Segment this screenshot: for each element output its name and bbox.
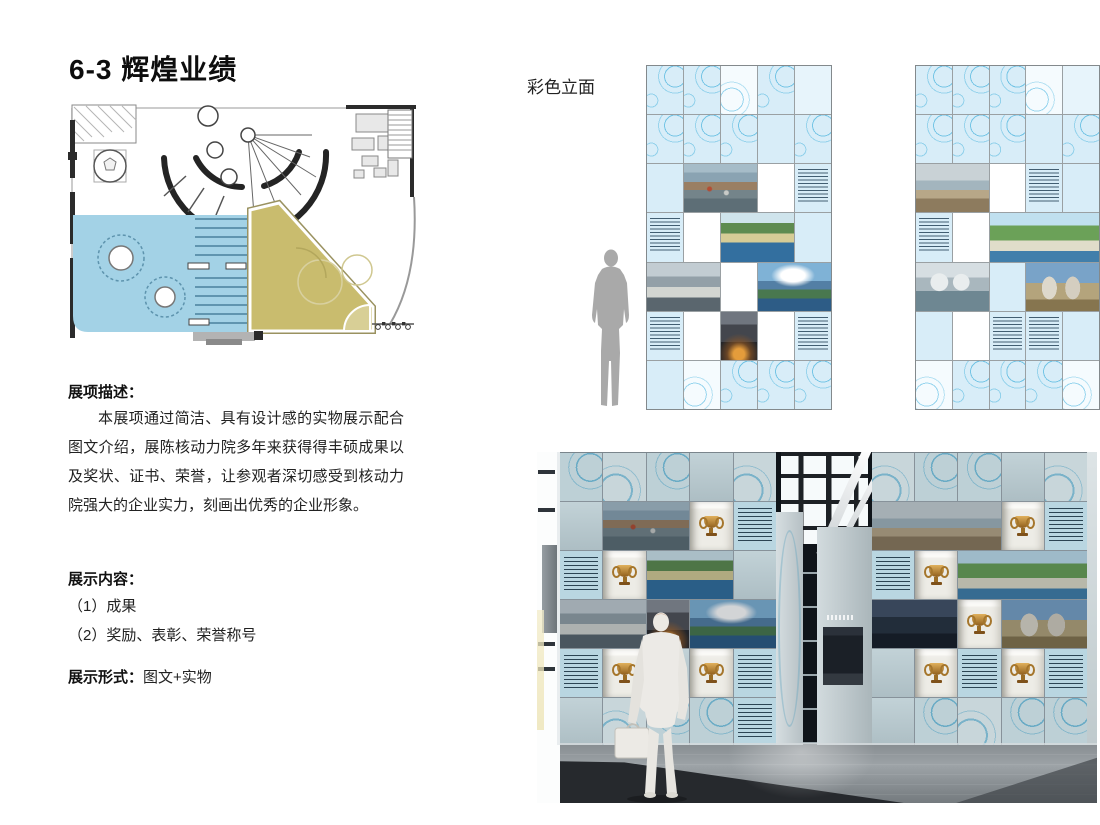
text-tile — [734, 502, 776, 550]
blueprint-tile — [758, 66, 794, 114]
text-tile — [958, 649, 1000, 697]
photo-tile-desert-towers — [1002, 600, 1087, 648]
text-tile — [795, 312, 831, 360]
floor-highlight — [721, 745, 882, 803]
description-heading: 展项描述： — [68, 381, 143, 402]
trophy-icon — [927, 565, 945, 585]
photo-tile-desert-towers — [1026, 263, 1099, 311]
blueprint-tile — [990, 361, 1026, 409]
blueprint-tile — [1063, 361, 1099, 409]
photo-tile-cooling-tower — [758, 263, 831, 311]
white-tile — [684, 213, 720, 261]
text-tile — [916, 213, 952, 261]
blueprint-tile — [795, 115, 831, 163]
text-tile — [1026, 164, 1062, 212]
text-tile — [1026, 312, 1062, 360]
white-tile — [684, 312, 720, 360]
text-tile — [734, 649, 776, 697]
white-tile — [758, 164, 794, 212]
wall-side-panel — [776, 512, 803, 745]
text-tile — [872, 551, 914, 599]
building-silhouette-photo — [823, 627, 863, 685]
content-item-1: （1）成果 — [68, 595, 136, 616]
photo-tile-dusk-tower — [721, 312, 757, 360]
floor-shadow-band — [925, 745, 1097, 803]
blue-tile — [916, 312, 952, 360]
window-mullion — [538, 508, 555, 512]
text-tile — [795, 164, 831, 212]
gray-tile — [560, 502, 602, 550]
blueprint-tile — [647, 453, 689, 501]
blueprint-tile — [1002, 698, 1044, 746]
content-heading: 展示内容： — [68, 568, 143, 589]
page-title: 6-3 辉煌业绩 — [69, 48, 237, 88]
exhibition-3d-render — [537, 452, 1097, 803]
trophy-icon — [616, 565, 634, 585]
right-edge-panel — [1087, 452, 1097, 745]
format-line: 展示形式：图文+实物 — [68, 666, 212, 687]
description-body: 本展项通过简洁、具有设计感的实物展示配合图文介绍，展陈核动力院多年来获得得丰硕成… — [68, 404, 404, 520]
blue-tile — [1026, 115, 1062, 163]
floor-plan-drawing — [58, 100, 418, 350]
plan-zone-blue — [73, 215, 248, 332]
wall-side-panel — [817, 527, 872, 745]
trophy-icon — [702, 663, 720, 683]
plan-hatch-room — [72, 105, 136, 143]
blueprint-tile — [958, 453, 1000, 501]
blueprint-tile — [915, 453, 957, 501]
visitor-mannequin — [609, 610, 705, 803]
elevation-panel-1 — [646, 65, 832, 410]
blueprint-tile — [721, 115, 757, 163]
photo-tile-coastal-plant — [647, 551, 733, 599]
blueprint-tile — [560, 453, 602, 501]
blueprint-tile — [795, 361, 831, 409]
blueprint-tile — [603, 453, 645, 501]
photo-tile-night-plant — [872, 600, 957, 648]
gray-tile — [872, 649, 914, 697]
blue-tile — [795, 213, 831, 261]
blueprint-tile — [721, 361, 757, 409]
window-mullion — [542, 545, 557, 633]
blueprint-tile — [647, 66, 683, 114]
trophy-icon — [927, 663, 945, 683]
white-tile — [953, 213, 989, 261]
photo-tile-aerial-plant — [603, 502, 689, 550]
blueprint-tile — [1063, 115, 1099, 163]
blue-tile — [1063, 164, 1099, 212]
trophy-icon — [702, 516, 720, 536]
blueprint-tile — [647, 115, 683, 163]
trophy-display-case — [958, 600, 1000, 648]
small-sign — [827, 615, 853, 620]
trophy-display-case — [690, 502, 732, 550]
text-tile — [1045, 649, 1087, 697]
blueprint-tile — [684, 361, 720, 409]
blueprint-tile — [1026, 66, 1062, 114]
window-light — [537, 610, 544, 730]
trophy-display-case — [1002, 502, 1044, 550]
blue-tile — [990, 263, 1026, 311]
blueprint-tile — [684, 66, 720, 114]
window-slit — [803, 542, 817, 745]
photo-tile-twin-reactors — [916, 263, 989, 311]
text-tile — [990, 312, 1026, 360]
blue-tile — [647, 164, 683, 212]
trophy-display-case — [1002, 649, 1044, 697]
blueprint-tile — [990, 115, 1026, 163]
blueprint-tile — [958, 698, 1000, 746]
plan-column-markers — [372, 322, 414, 329]
elevation-panel-2 — [915, 65, 1100, 410]
format-value: 图文+实物 — [143, 669, 212, 686]
blueprint-tile — [953, 361, 989, 409]
blue-tile — [1063, 312, 1099, 360]
blueprint-tile — [916, 66, 952, 114]
blueprint-tile — [990, 66, 1026, 114]
design-board-page: 6-3 辉煌业绩 — [0, 0, 1100, 825]
plan-curved-wall — [390, 197, 415, 324]
plan-zone-khaki — [250, 203, 373, 331]
blueprint-tile — [1026, 361, 1062, 409]
trophy-display-case — [915, 649, 957, 697]
blueprint-tile — [916, 115, 952, 163]
trophy-icon — [1014, 663, 1032, 683]
hall-gap — [776, 452, 872, 745]
photo-tile-aerial-plant — [684, 164, 757, 212]
text-tile — [560, 649, 602, 697]
format-label: 展示形式： — [68, 669, 143, 686]
gray-tile — [734, 551, 776, 599]
blue-tile — [758, 115, 794, 163]
trophy-icon — [1014, 516, 1032, 536]
trophy-icon — [970, 614, 988, 634]
content-item-2: （2）奖励、表彰、荣誉称号 — [68, 624, 256, 645]
white-tile — [953, 312, 989, 360]
blueprint-tile — [916, 361, 952, 409]
wall-edge-highlight — [557, 452, 560, 745]
window-mullion — [538, 470, 555, 474]
plan-round-room — [94, 150, 126, 182]
photo-tile-coastal-town — [990, 213, 1099, 261]
gray-tile — [1002, 453, 1044, 501]
blueprint-tile — [1045, 453, 1087, 501]
blueprint-tile — [953, 66, 989, 114]
elevation-label: 彩色立面 — [527, 73, 595, 98]
blueprint-tile — [734, 453, 776, 501]
text-tile — [1045, 502, 1087, 550]
photo-tile-coastal-plant — [721, 213, 794, 261]
white-tile — [990, 164, 1026, 212]
scale-figure-silhouette — [583, 249, 639, 409]
gray-tile — [690, 453, 732, 501]
text-tile — [560, 551, 602, 599]
plan-stairs — [388, 110, 412, 158]
text-tile — [647, 312, 683, 360]
blue-tile — [795, 66, 831, 114]
blue-tile — [1063, 66, 1099, 114]
trophy-display-case — [915, 551, 957, 599]
white-tile — [758, 312, 794, 360]
blue-tile — [647, 361, 683, 409]
text-tile — [734, 698, 776, 746]
photo-wall-right — [872, 452, 1087, 746]
white-tile — [721, 263, 757, 311]
photo-tile-beach-plant — [872, 502, 1001, 550]
blueprint-tile — [953, 115, 989, 163]
photo-tile-mountain-plant — [647, 263, 720, 311]
blueprint-tile — [1045, 698, 1087, 746]
text-tile — [647, 213, 683, 261]
gray-tile — [560, 698, 602, 746]
plan-step — [193, 331, 263, 345]
photo-tile-beach-plant — [916, 164, 989, 212]
blueprint-tile — [684, 115, 720, 163]
trophy-display-case — [603, 551, 645, 599]
blueprint-tile — [915, 698, 957, 746]
gray-tile — [872, 698, 914, 746]
blueprint-tile — [758, 361, 794, 409]
photo-tile-coastal-town — [958, 551, 1087, 599]
blueprint-tile — [872, 453, 914, 501]
blueprint-tile — [721, 66, 757, 114]
